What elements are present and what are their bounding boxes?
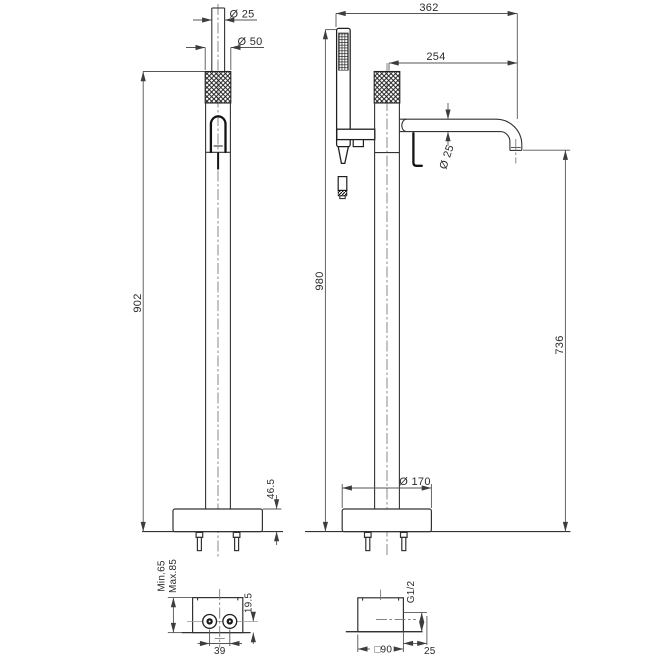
dim-side-overall-depth: 362 xyxy=(419,2,438,14)
front-knurled-handle xyxy=(205,72,231,104)
side-handshower-hose-cone xyxy=(338,147,348,164)
rough-in-front-box xyxy=(193,598,243,633)
dim-front-knob-dia: Ø 50 xyxy=(238,36,263,48)
dim-box-outlet-height: 19.5 xyxy=(243,593,254,614)
outlet-offset-dimension: 25 xyxy=(403,616,435,657)
dim-side-spout-dia: Ø 25 xyxy=(438,143,457,171)
side-base-plate xyxy=(342,509,431,532)
dim-side-spout-reach: 254 xyxy=(426,51,445,63)
dim-front-height: 902 xyxy=(132,293,144,312)
dim-box-offset: 25 xyxy=(424,646,436,657)
water-connection-left xyxy=(203,615,217,629)
rough-in-side-box xyxy=(358,598,404,632)
thread-dimension: G1/2 xyxy=(403,581,427,632)
side-mounting-pins xyxy=(365,532,408,550)
front-height-dimension: 902 xyxy=(132,72,205,532)
outlet-height-dimension: 19.5 xyxy=(243,593,254,644)
dim-box-max-depth: Max.85 xyxy=(168,559,179,593)
body-width-dimension: □90 xyxy=(358,635,404,656)
dim-side-base-dia: Ø 170 xyxy=(399,476,430,488)
side-spout-height-dimension: 736 xyxy=(523,150,570,531)
front-base-plate xyxy=(173,509,262,532)
side-lever-rod xyxy=(413,133,421,166)
side-hose-connector xyxy=(338,177,347,199)
rough-in-front-view: Min.65 Max.85 19.5 39 xyxy=(156,559,258,657)
faucet-dimension-drawing: Ø 25 Ø 50 902 46.5 xyxy=(0,0,661,661)
water-connection-right xyxy=(223,615,237,629)
side-spout-reach-dimension: 254 xyxy=(389,51,517,70)
side-handshower-holder xyxy=(337,129,375,139)
dim-box-width: □90 xyxy=(374,645,392,656)
dim-side-spout-height: 736 xyxy=(554,335,566,354)
front-view: Ø 25 Ø 50 902 46.5 xyxy=(132,4,283,557)
dim-box-min-depth: Min.65 xyxy=(156,560,167,591)
dim-box-thread: G1/2 xyxy=(406,581,417,604)
side-handshower-spray-face xyxy=(339,33,349,70)
technical-drawing-page: Ø 25 Ø 50 902 46.5 xyxy=(0,0,661,661)
side-knurled-handle xyxy=(374,72,400,104)
rough-in-side-view: G1/2 25 □90 xyxy=(346,581,436,657)
side-spout xyxy=(399,119,521,163)
side-spout-dia-dimension: Ø 25 xyxy=(438,103,457,171)
side-handshower xyxy=(337,28,375,163)
front-base-height-dimension: 46.5 xyxy=(263,479,282,545)
side-view: 362 254 Ø 25 980 736 xyxy=(305,2,570,557)
side-height-dimension: 980 xyxy=(314,30,336,532)
dim-side-height: 980 xyxy=(314,271,326,290)
dim-box-outlet-spacing: 39 xyxy=(214,646,226,657)
dim-front-shower-dia: Ø 25 xyxy=(230,9,255,21)
dim-front-base-height: 46.5 xyxy=(266,479,277,500)
